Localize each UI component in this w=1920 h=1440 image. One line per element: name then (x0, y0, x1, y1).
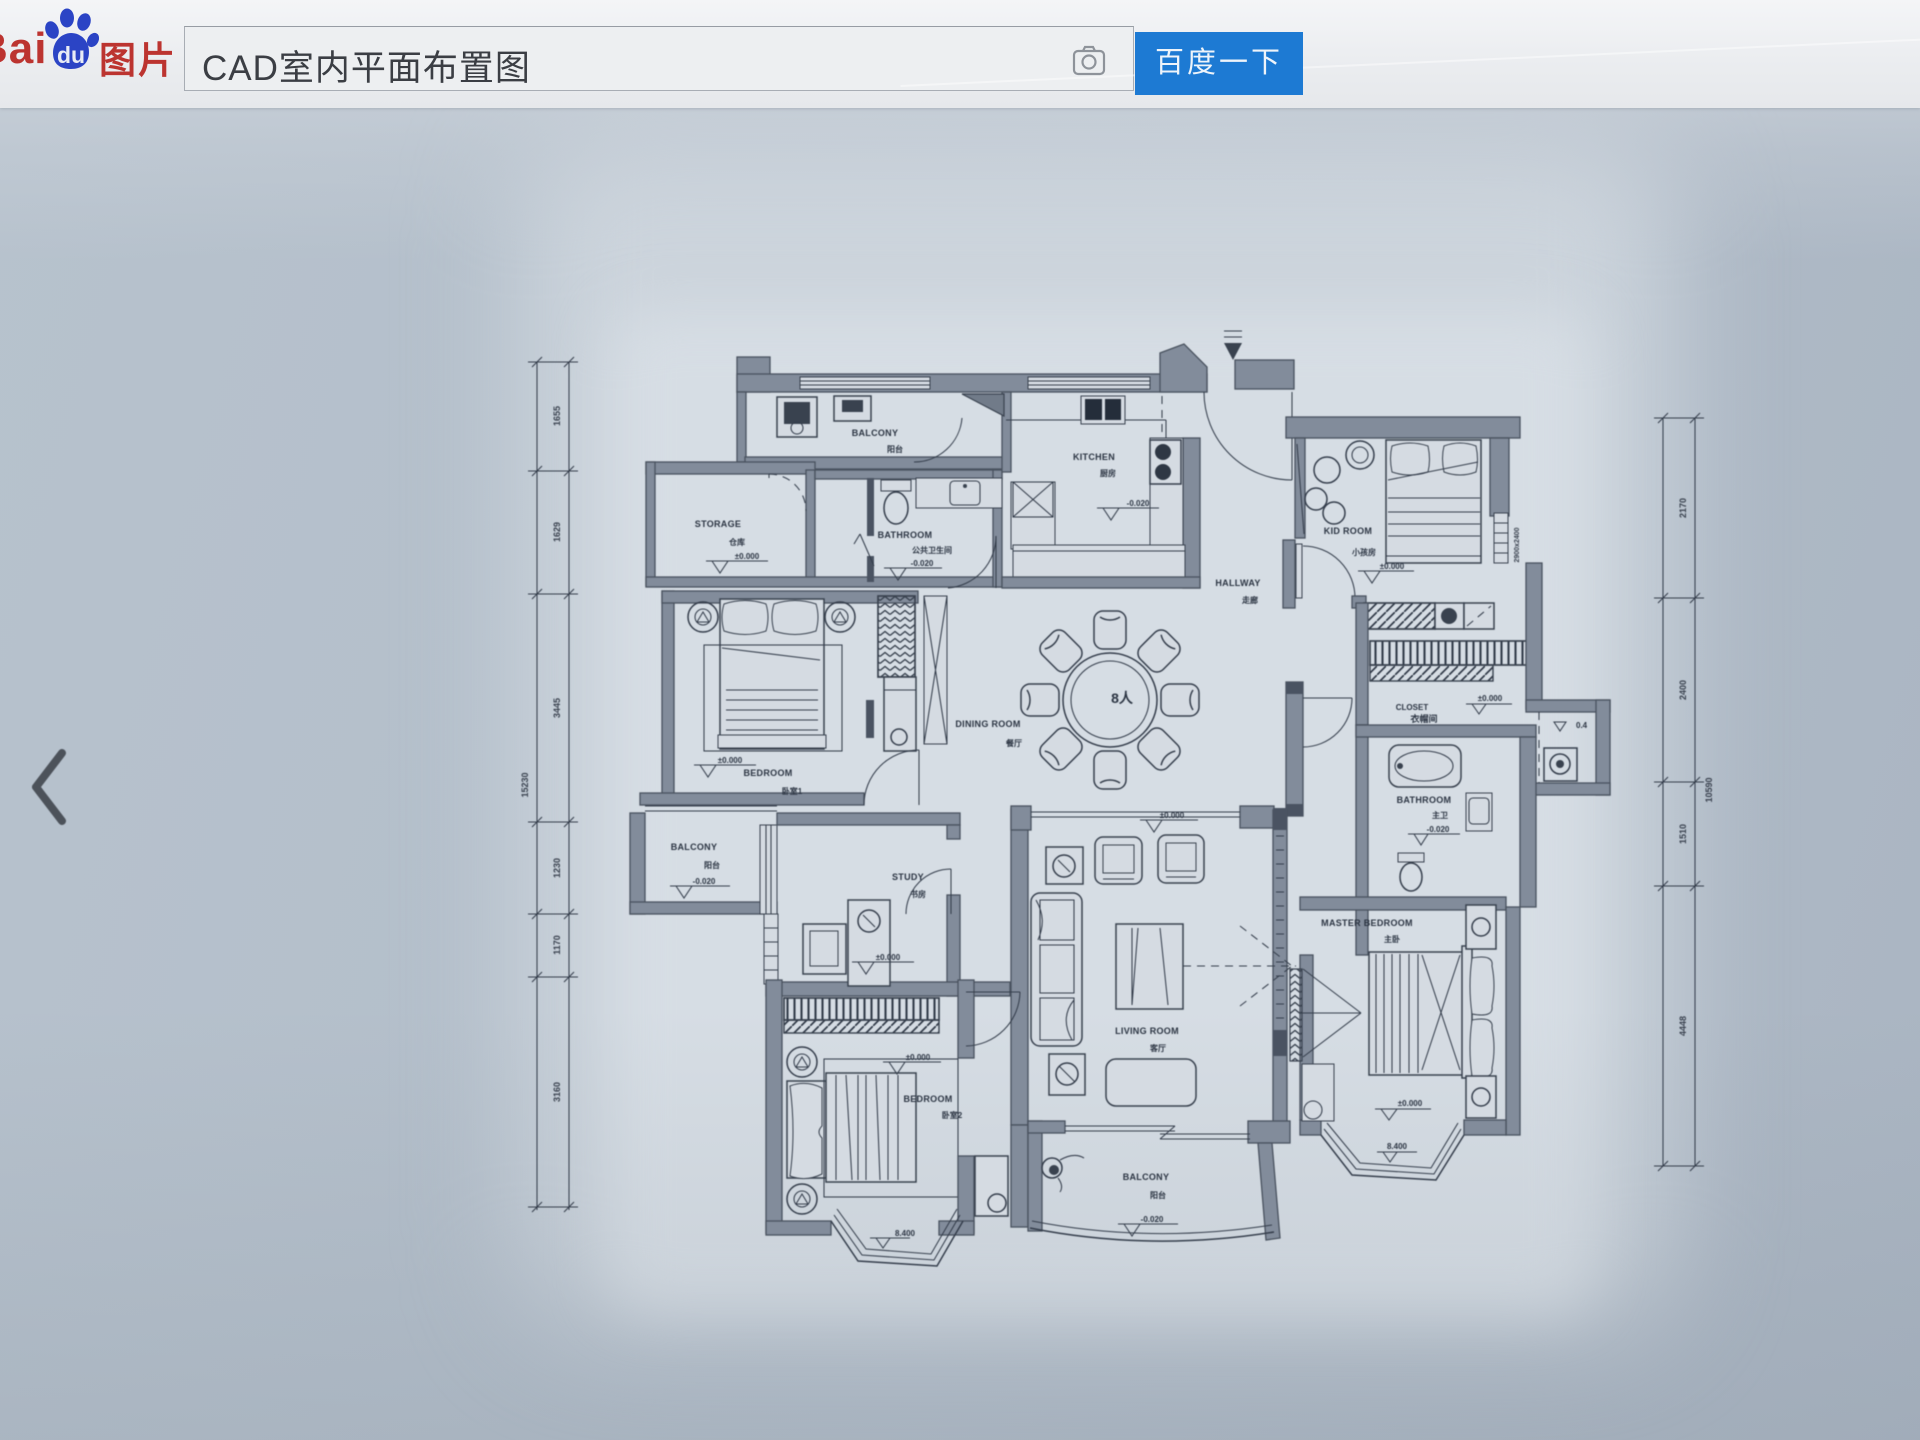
svg-text:衣帽间: 衣帽间 (1410, 713, 1437, 724)
svg-text:BATHROOM: BATHROOM (878, 530, 933, 540)
svg-text:BATHROOM: BATHROOM (1397, 795, 1452, 805)
svg-text:2900x2400: 2900x2400 (1514, 527, 1521, 562)
svg-text:3445: 3445 (552, 698, 562, 718)
svg-text:-0.020: -0.020 (1427, 825, 1450, 834)
svg-text:阳台: 阳台 (887, 444, 903, 454)
svg-text:3160: 3160 (552, 1082, 562, 1102)
svg-text:KID ROOM: KID ROOM (1324, 526, 1372, 536)
svg-text:-0.020: -0.020 (1127, 499, 1150, 508)
svg-text:公共卫生间: 公共卫生间 (912, 545, 952, 555)
svg-text:BEDROOM: BEDROOM (743, 768, 792, 778)
svg-text:±0.000: ±0.000 (735, 552, 760, 561)
svg-text:8人: 8人 (1111, 690, 1134, 706)
svg-text:主卧: 主卧 (1384, 934, 1400, 944)
svg-text:±0.000: ±0.000 (1398, 1099, 1423, 1108)
svg-text:8.400: 8.400 (1387, 1142, 1408, 1151)
svg-text:书房: 书房 (910, 889, 926, 899)
svg-text:阳台: 阳台 (704, 860, 720, 870)
svg-text:小孩房: 小孩房 (1351, 547, 1376, 557)
svg-text:15230: 15230 (520, 772, 530, 797)
svg-text:1629: 1629 (552, 522, 562, 542)
svg-text:4448: 4448 (1678, 1016, 1688, 1036)
svg-text:±0.000: ±0.000 (718, 756, 743, 765)
svg-text:KITCHEN: KITCHEN (1073, 452, 1115, 462)
svg-text:卧室1: 卧室1 (782, 786, 803, 796)
svg-text:1510: 1510 (1678, 824, 1688, 844)
svg-text:STORAGE: STORAGE (695, 519, 741, 529)
svg-text:CLOSET: CLOSET (1396, 703, 1429, 712)
svg-text:±0.000: ±0.000 (1160, 811, 1185, 820)
svg-text:STUDY: STUDY (892, 872, 924, 882)
svg-text:仓库: 仓库 (728, 537, 745, 547)
svg-text:8.400: 8.400 (895, 1229, 916, 1238)
svg-text:主卫: 主卫 (1432, 810, 1448, 820)
svg-text:DINING ROOM: DINING ROOM (955, 719, 1020, 729)
svg-text:1655: 1655 (552, 406, 562, 426)
svg-text:卧室2: 卧室2 (942, 1110, 963, 1120)
svg-text:±0.000: ±0.000 (1478, 694, 1503, 703)
svg-text:±0.000: ±0.000 (876, 953, 901, 962)
svg-text:±0.000: ±0.000 (1380, 562, 1405, 571)
svg-text:客厅: 客厅 (1149, 1043, 1166, 1053)
svg-text:2400: 2400 (1678, 680, 1688, 700)
svg-text:±0.000: ±0.000 (906, 1053, 931, 1062)
svg-text:0.4: 0.4 (1576, 721, 1588, 730)
svg-text:BALCONY: BALCONY (1123, 1172, 1170, 1182)
svg-text:BEDROOM: BEDROOM (903, 1094, 952, 1104)
svg-text:1230: 1230 (552, 858, 562, 878)
svg-text:1170: 1170 (552, 935, 562, 955)
svg-text:厨房: 厨房 (1100, 468, 1116, 478)
svg-text:10590: 10590 (1704, 777, 1714, 802)
svg-text:餐厅: 餐厅 (1005, 738, 1022, 748)
svg-text:du: du (57, 42, 85, 68)
svg-text:-0.020: -0.020 (1141, 1215, 1164, 1224)
svg-text:阳台: 阳台 (1150, 1190, 1166, 1200)
svg-text:MASTER BEDROOM: MASTER BEDROOM (1321, 918, 1413, 928)
svg-text:2170: 2170 (1678, 498, 1688, 518)
svg-text:走廊: 走廊 (1241, 595, 1258, 605)
svg-text:BALCONY: BALCONY (852, 428, 899, 438)
svg-text:LIVING ROOM: LIVING ROOM (1115, 1026, 1179, 1036)
svg-text:-0.020: -0.020 (911, 559, 934, 568)
svg-text:BALCONY: BALCONY (671, 842, 718, 852)
svg-text:HALLWAY: HALLWAY (1215, 578, 1260, 588)
svg-text:-0.020: -0.020 (693, 877, 716, 886)
